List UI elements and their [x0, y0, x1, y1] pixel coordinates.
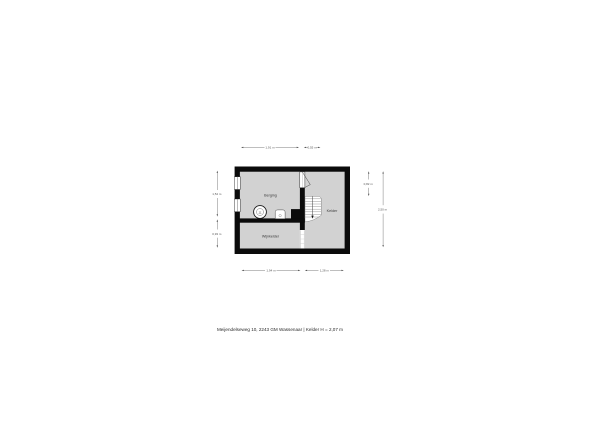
- svg-text:0,93 m: 0,93 m: [212, 232, 222, 236]
- svg-text:1,28 m: 1,28 m: [320, 269, 330, 273]
- svg-text:1,54 m: 1,54 m: [212, 192, 222, 196]
- svg-text:Meijendelseweg 10, 2243 GM Was: Meijendelseweg 10, 2243 GM Wassenaar | K…: [217, 327, 343, 332]
- svg-text:Kelder: Kelder: [327, 209, 338, 213]
- svg-text:2,50 m: 2,50 m: [378, 208, 388, 212]
- svg-text:1,91 m: 1,91 m: [265, 146, 275, 150]
- svg-text:0,55 m: 0,55 m: [308, 146, 318, 150]
- svg-text:Wijnkelder: Wijnkelder: [262, 234, 280, 238]
- svg-text:0,82 m: 0,82 m: [364, 182, 374, 186]
- svg-text:1,94 m: 1,94 m: [266, 269, 276, 273]
- svg-text:Berging: Berging: [264, 193, 277, 197]
